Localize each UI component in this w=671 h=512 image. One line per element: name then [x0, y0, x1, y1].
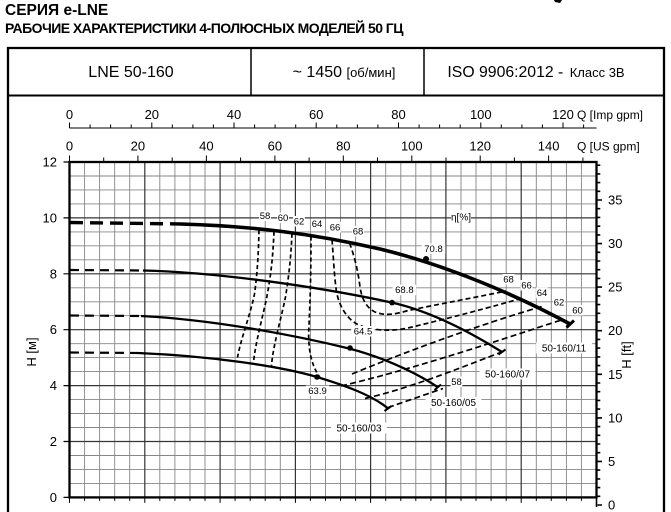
- svg-text:60: 60: [309, 107, 323, 122]
- svg-text:6: 6: [50, 322, 57, 337]
- svg-text:100: 100: [470, 107, 492, 122]
- svg-text:64: 64: [537, 288, 548, 299]
- svg-text:80: 80: [336, 139, 350, 154]
- svg-text:62: 62: [294, 217, 305, 228]
- svg-text:58: 58: [260, 211, 271, 222]
- svg-text:64.5: 64.5: [354, 327, 373, 338]
- svg-text:РАБОЧИЕ ХАРАКТЕРИСТИКИ 4-ПОЛЮС: РАБОЧИЕ ХАРАКТЕРИСТИКИ 4-ПОЛЮСНЫХ МОДЕЛЕ…: [5, 19, 404, 36]
- svg-text:20: 20: [145, 107, 159, 122]
- svg-text:Q [US gpm]: Q [US gpm]: [577, 140, 640, 154]
- svg-text:60: 60: [572, 306, 583, 317]
- svg-text:СЕРИЯ e-LNE: СЕРИЯ e-LNE: [5, 2, 108, 19]
- svg-text:63.9: 63.9: [308, 386, 327, 397]
- svg-text:120: 120: [469, 139, 491, 154]
- svg-text:35: 35: [608, 193, 622, 208]
- svg-text:68.8: 68.8: [395, 285, 414, 296]
- svg-text:LNE 50-160: LNE 50-160: [88, 64, 173, 81]
- svg-text:η[%]: η[%]: [451, 213, 471, 224]
- svg-text:0: 0: [66, 107, 73, 122]
- svg-text:0: 0: [50, 490, 57, 505]
- svg-text:66: 66: [330, 223, 341, 234]
- svg-text:100: 100: [401, 139, 423, 154]
- svg-text:12: 12: [43, 155, 57, 170]
- svg-text:20: 20: [608, 323, 622, 338]
- svg-text:10: 10: [608, 410, 622, 425]
- svg-text:0: 0: [608, 498, 615, 512]
- svg-text:20: 20: [131, 139, 145, 154]
- svg-text:40: 40: [199, 139, 213, 154]
- svg-text:4: 4: [50, 378, 57, 393]
- svg-text:8: 8: [50, 266, 57, 281]
- svg-text:60: 60: [278, 213, 289, 224]
- svg-text:62: 62: [554, 298, 565, 309]
- svg-text:50-160/11: 50-160/11: [542, 344, 587, 355]
- svg-text:40: 40: [227, 107, 241, 122]
- svg-text:ISO 9906:2012 - Класс 3В: ISO 9906:2012 - Класс 3В: [447, 64, 624, 81]
- svg-text:50-160/03: 50-160/03: [336, 424, 381, 435]
- svg-text:70.8: 70.8: [424, 244, 443, 255]
- svg-text:25: 25: [608, 280, 622, 295]
- svg-text:H [м]: H [м]: [24, 337, 39, 366]
- svg-text:5: 5: [608, 454, 615, 469]
- svg-text:50-160/05: 50-160/05: [431, 398, 476, 409]
- svg-text:68: 68: [503, 275, 514, 286]
- svg-text:120: 120: [552, 107, 574, 122]
- svg-text:80: 80: [391, 107, 405, 122]
- svg-text:68: 68: [353, 227, 364, 238]
- svg-text:30: 30: [608, 236, 622, 251]
- svg-text:2: 2: [50, 434, 57, 449]
- svg-text:H [ft]: H [ft]: [619, 341, 634, 368]
- svg-text:66: 66: [521, 281, 532, 292]
- svg-text:60: 60: [268, 139, 282, 154]
- svg-text:0: 0: [66, 139, 73, 154]
- svg-text:10: 10: [43, 210, 57, 225]
- svg-text:64: 64: [312, 219, 323, 230]
- svg-text:Q [Imp gpm]: Q [Imp gpm]: [577, 108, 643, 122]
- svg-text:140: 140: [538, 139, 560, 154]
- svg-text:50-160/07: 50-160/07: [485, 370, 530, 381]
- svg-text:58: 58: [451, 377, 462, 388]
- svg-text:~ 1450 [об/мин]: ~ 1450 [об/мин]: [293, 64, 396, 81]
